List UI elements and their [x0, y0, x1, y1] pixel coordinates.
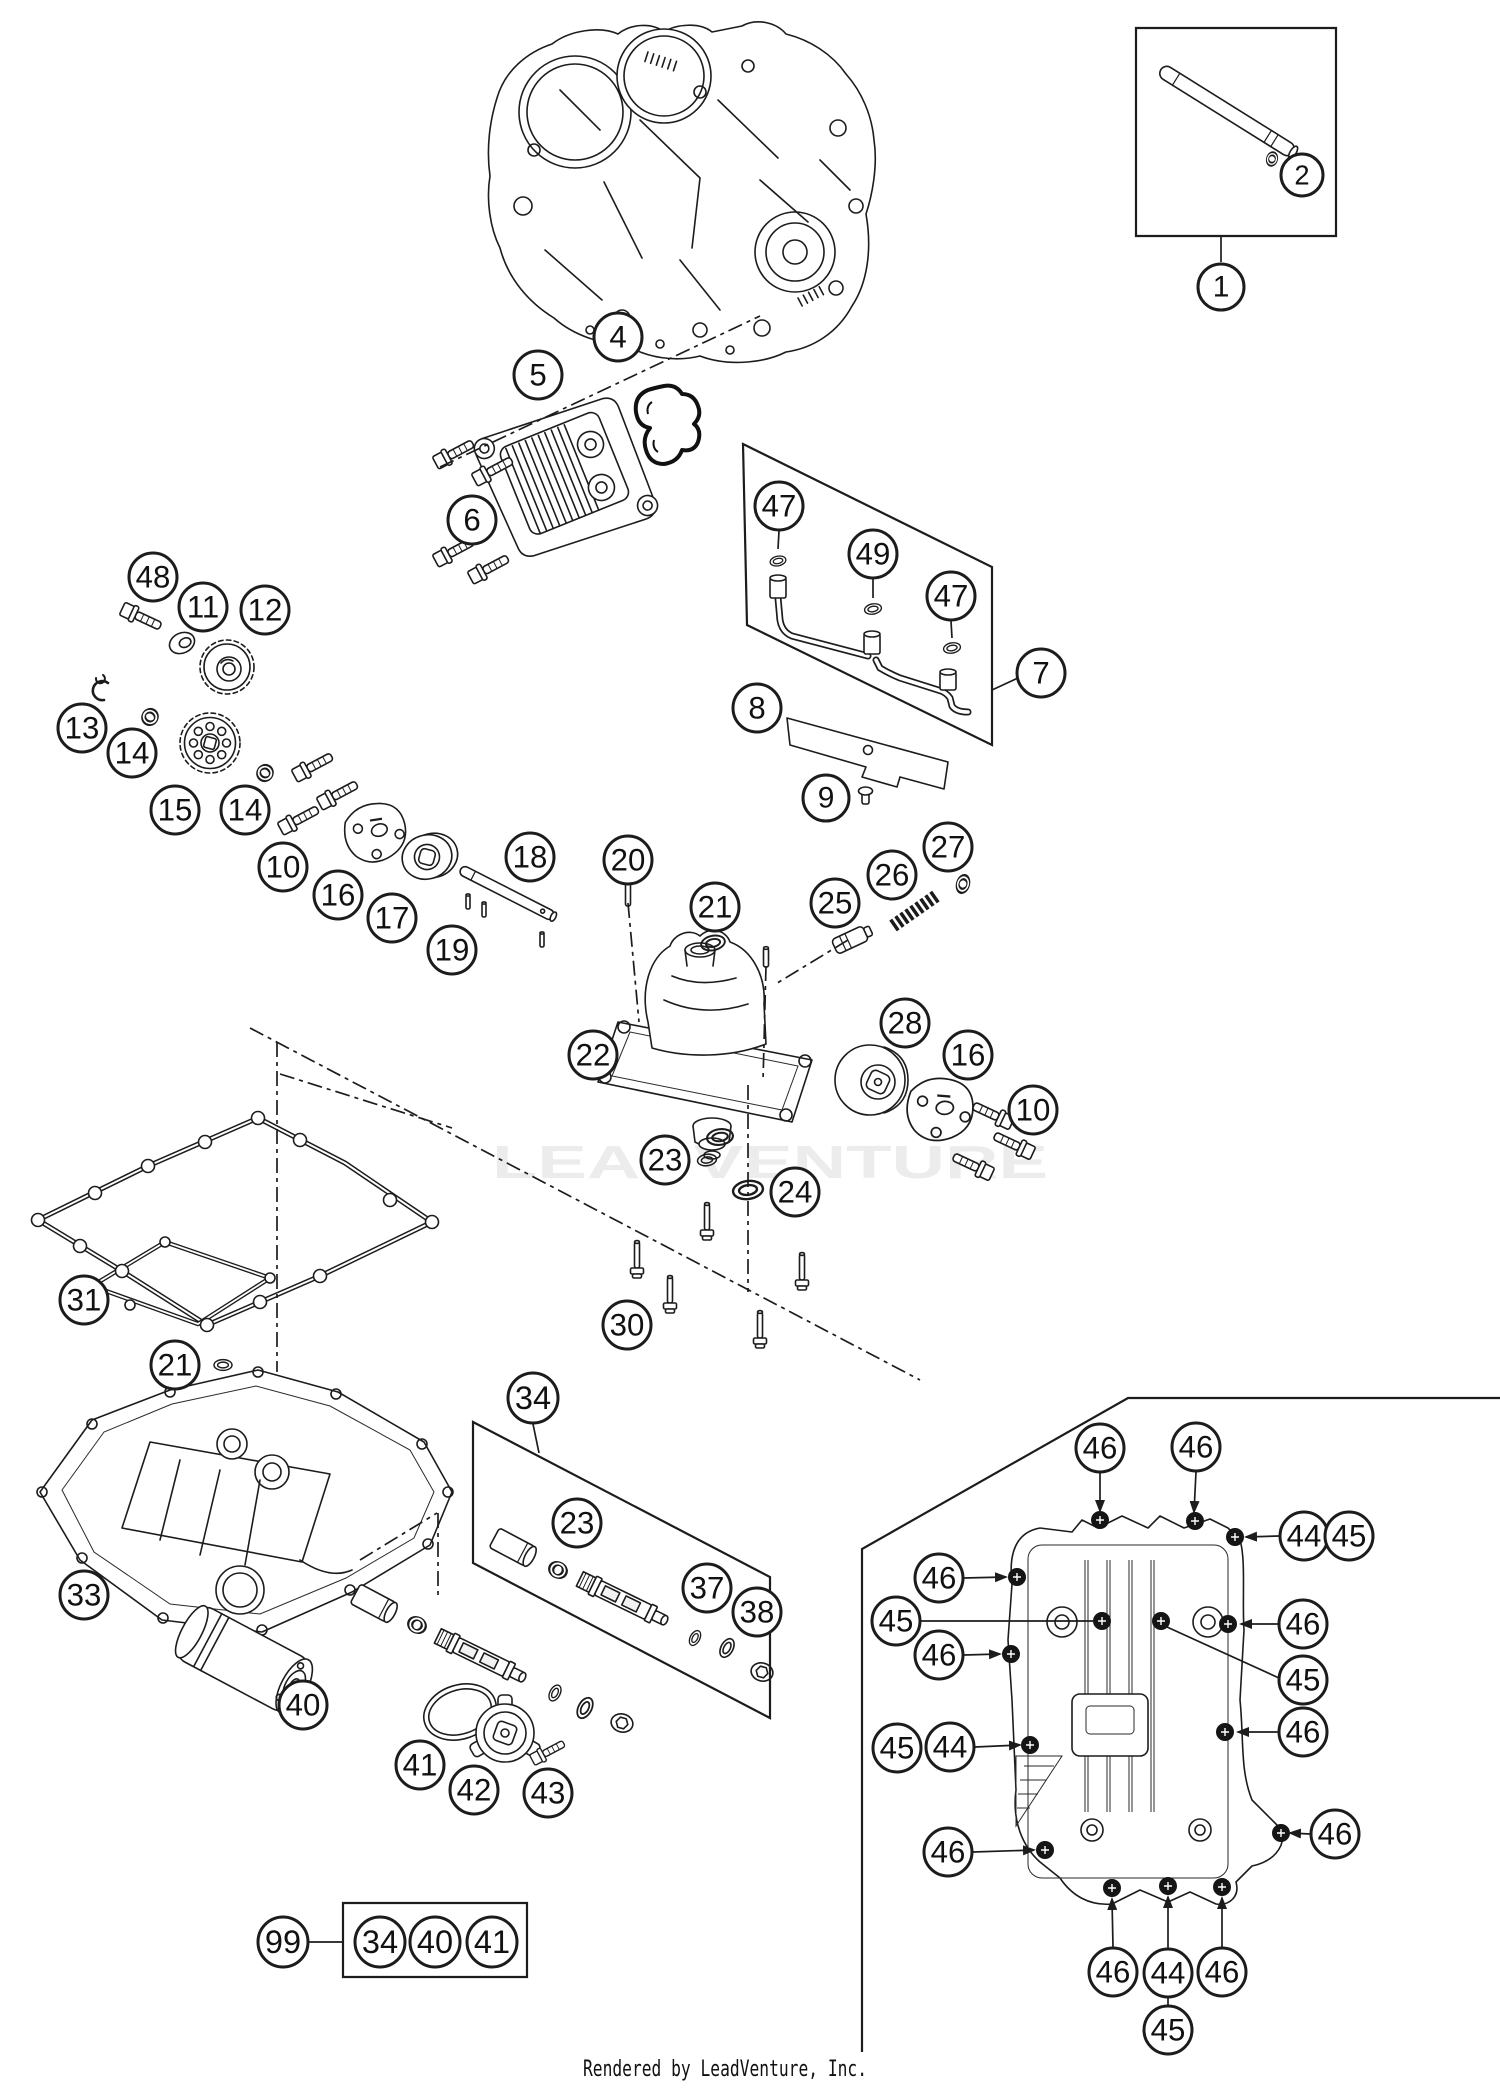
svg-text:5: 5 [529, 358, 546, 393]
leader-line [992, 678, 1018, 690]
parts-diagram-page: LEADVENTURE [0, 0, 1500, 2088]
baffle-screw [859, 787, 873, 804]
bolt-icon [701, 1203, 714, 1240]
callout-11: 11 [179, 583, 227, 631]
svg-text:8: 8 [748, 691, 765, 726]
engine-crankcase [488, 22, 875, 363]
bypass-sleeve [350, 1584, 400, 1624]
callout-49: 49 [849, 530, 897, 578]
bolt-icon [291, 749, 336, 784]
pump-cover-plate [905, 1075, 976, 1143]
svg-text:47: 47 [762, 489, 797, 524]
valve-oring [954, 874, 971, 895]
leader-line [1290, 1833, 1310, 1834]
footer-credit: Rendered by LeadVenture, Inc. [583, 2057, 867, 2082]
gasket-oring [214, 1360, 232, 1371]
svg-text:14: 14 [115, 736, 150, 771]
callout-19: 19 [428, 926, 476, 974]
leader-line [973, 1850, 1034, 1852]
bolt-icon [277, 802, 322, 837]
svg-text:46: 46 [1083, 1431, 1118, 1466]
callout-24: 24 [771, 1168, 819, 1216]
svg-text:44: 44 [1287, 1519, 1322, 1554]
svg-text:21: 21 [698, 890, 733, 925]
bypass-oring [574, 1695, 596, 1721]
callout-16: 16 [314, 871, 362, 919]
callout-7: 7 [1017, 649, 1065, 697]
callout-99: 99 [258, 1917, 308, 1967]
svg-text:21: 21 [158, 1348, 193, 1383]
svg-text:34: 34 [515, 1380, 551, 1416]
svg-text:46: 46 [1205, 1955, 1240, 1990]
callout-45: 45 [872, 1597, 920, 1645]
callout-21: 21 [151, 1341, 199, 1389]
dowel-oring [1265, 151, 1279, 167]
callout-23: 23 [641, 1136, 689, 1184]
callout-25: 25 [811, 879, 859, 927]
bypass-plug [609, 1711, 635, 1734]
bypass-oring [717, 1636, 737, 1659]
callout-45: 45 [1144, 2006, 1192, 2054]
svg-text:41: 41 [474, 1924, 510, 1960]
svg-text:44: 44 [1151, 1956, 1186, 1991]
callout-41: 41 [467, 1917, 517, 1967]
callout-33: 33 [60, 1571, 108, 1619]
circlip [93, 675, 108, 700]
construction-line [774, 940, 848, 985]
svg-text:7: 7 [1032, 656, 1049, 691]
callout-45: 45 [1325, 1512, 1373, 1560]
bypass-valve [575, 1570, 671, 1630]
svg-text:38: 38 [740, 1595, 775, 1630]
svg-text:27: 27 [931, 830, 966, 865]
pipe-oring [864, 603, 883, 616]
bolt-icon [467, 551, 512, 586]
callout-14: 14 [221, 786, 269, 834]
dowel-pin [1157, 64, 1299, 167]
callout-44: 44 [1280, 1512, 1328, 1560]
svg-text:17: 17 [375, 901, 410, 936]
svg-text:44: 44 [933, 1730, 968, 1765]
svg-text:23: 23 [648, 1143, 683, 1178]
bypass-oring [687, 1629, 703, 1648]
svg-text:46: 46 [1318, 1817, 1353, 1852]
kit-1-box [1136, 28, 1336, 236]
callout-22: 22 [569, 1031, 617, 1079]
leader-line [964, 1577, 1006, 1578]
pipe-oring [769, 555, 787, 568]
oil-pan-bottom-view [1003, 1512, 1290, 1905]
svg-text:20: 20 [611, 843, 646, 878]
svg-text:22: 22 [576, 1038, 611, 1073]
dowel-pin-small [540, 932, 544, 947]
baffle-plate [787, 718, 948, 789]
callout-47: 47 [755, 482, 803, 530]
svg-text:46: 46 [1096, 1955, 1131, 1990]
callout-44: 44 [926, 1723, 974, 1771]
construction-line [280, 1074, 452, 1128]
callout-23: 23 [553, 1499, 601, 1547]
callout-27: 27 [924, 823, 972, 871]
svg-text:45: 45 [880, 1731, 915, 1766]
svg-text:49: 49 [856, 537, 891, 572]
callout-45: 45 [1279, 1656, 1327, 1704]
dowel-pin-small [482, 902, 486, 917]
svg-text:11: 11 [187, 590, 219, 625]
svg-text:23: 23 [560, 1506, 595, 1541]
callout-8: 8 [733, 684, 781, 732]
bolt-icon [796, 1253, 809, 1290]
callout-5: 5 [514, 351, 562, 399]
callout-46: 46 [1311, 1810, 1359, 1858]
svg-text:33: 33 [67, 1578, 102, 1613]
svg-text:40: 40 [417, 1924, 453, 1960]
parts-diagram: LEADVENTURE [0, 0, 1500, 2088]
leader-line [1112, 1899, 1113, 1947]
washer [254, 762, 276, 784]
callout-41: 41 [396, 1741, 444, 1789]
callout-14: 14 [108, 729, 156, 777]
callout-48: 48 [129, 553, 177, 601]
svg-text:43: 43 [531, 1776, 566, 1811]
pump-rotor-cup [835, 1045, 908, 1115]
callout-47: 47 [927, 572, 975, 620]
svg-text:19: 19 [435, 933, 470, 968]
callout-42: 42 [450, 1766, 498, 1814]
svg-text:24: 24 [778, 1175, 813, 1210]
leader-line [975, 1745, 1020, 1747]
callout-34: 34 [508, 1373, 558, 1423]
leader-line [1246, 1536, 1279, 1537]
callout-46: 46 [1172, 1423, 1220, 1471]
svg-text:28: 28 [888, 1006, 923, 1041]
callout-43: 43 [524, 1769, 572, 1817]
callout-46: 46 [1279, 1600, 1327, 1648]
svg-text:47: 47 [934, 579, 969, 614]
oil-cooler [471, 387, 661, 569]
svg-text:41: 41 [403, 1748, 438, 1783]
svg-text:12: 12 [248, 593, 283, 628]
bypass-sleeve [489, 1528, 539, 1568]
leader-line [964, 1654, 1000, 1655]
svg-text:42: 42 [457, 1773, 492, 1808]
callout-13: 13 [58, 704, 106, 752]
leader-line [1194, 1472, 1196, 1512]
callout-44: 44 [1144, 1949, 1192, 1997]
callout-28: 28 [881, 999, 929, 1047]
callout-18: 18 [506, 833, 554, 881]
callout-10: 10 [259, 843, 307, 891]
svg-text:10: 10 [1016, 1093, 1051, 1128]
construction-line [250, 1028, 920, 1380]
valve-spring [893, 896, 936, 926]
callout-37: 37 [683, 1564, 731, 1612]
bypass-oring [547, 1683, 564, 1703]
svg-text:1: 1 [1213, 271, 1230, 304]
svg-text:34: 34 [362, 1924, 398, 1960]
bypass-valve [433, 1627, 529, 1687]
cooler-gasket [636, 386, 700, 464]
svg-text:45: 45 [1332, 1519, 1367, 1554]
gear-large [180, 713, 240, 773]
bolt-icon [664, 1276, 677, 1313]
svg-text:45: 45 [1151, 2013, 1186, 2048]
svg-text:18: 18 [513, 840, 548, 875]
svg-text:16: 16 [951, 1038, 986, 1073]
bolt-icon [631, 1241, 644, 1278]
leader-line [778, 531, 779, 549]
svg-text:9: 9 [818, 782, 835, 815]
callout-46: 46 [1089, 1948, 1137, 1996]
svg-text:46: 46 [1286, 1607, 1321, 1642]
callout-10: 10 [1009, 1086, 1057, 1134]
pump-rotor-set [397, 828, 462, 885]
filter-cap [469, 1695, 542, 1762]
callout-46: 46 [915, 1631, 963, 1679]
svg-text:2: 2 [1294, 160, 1309, 191]
bypass-valve-parts [350, 1528, 775, 1735]
callout-34: 34 [355, 1917, 405, 1967]
callout-46: 46 [915, 1554, 963, 1602]
svg-text:99: 99 [265, 1924, 301, 1960]
callout-30: 30 [603, 1301, 651, 1349]
svg-text:46: 46 [931, 1835, 966, 1870]
svg-text:46: 46 [1286, 1715, 1321, 1750]
pan-gasket [32, 1112, 439, 1371]
svg-text:31: 31 [67, 1283, 102, 1318]
callout-31: 31 [60, 1276, 108, 1324]
callout-20: 20 [604, 836, 652, 884]
callout-46: 46 [924, 1828, 972, 1876]
svg-text:30: 30 [610, 1308, 645, 1343]
callout-15: 15 [151, 786, 199, 834]
svg-text:46: 46 [922, 1561, 957, 1596]
collar [166, 628, 198, 657]
svg-text:6: 6 [463, 503, 480, 538]
callout-1: 1 [1198, 264, 1244, 310]
svg-text:40: 40 [286, 1688, 321, 1723]
dowel-pin-small [466, 894, 470, 909]
bolt-icon [316, 777, 361, 812]
pipe-oring [943, 642, 962, 655]
svg-text:48: 48 [136, 560, 171, 595]
callout-21: 21 [691, 883, 739, 931]
bypass-oring [546, 1559, 569, 1582]
callout-2: 2 [1281, 154, 1323, 196]
callout-38: 38 [733, 1588, 781, 1636]
svg-text:45: 45 [1286, 1663, 1321, 1698]
construction-line [628, 903, 639, 1022]
svg-text:46: 46 [922, 1638, 957, 1673]
callout-46: 46 [1279, 1708, 1327, 1756]
callout-40: 40 [279, 1681, 327, 1729]
gear-small [200, 640, 254, 694]
callout-40: 40 [410, 1917, 460, 1967]
callout-6: 6 [448, 496, 496, 544]
svg-text:26: 26 [875, 858, 910, 893]
callout-12: 12 [241, 586, 289, 634]
svg-text:46: 46 [1179, 1430, 1214, 1465]
bypass-oring [405, 1614, 428, 1637]
svg-text:14: 14 [228, 793, 263, 828]
leader-line [951, 621, 952, 638]
svg-text:13: 13 [65, 711, 100, 746]
callout-26: 26 [868, 851, 916, 899]
svg-text:10: 10 [266, 850, 301, 885]
leader-line [533, 1424, 539, 1453]
callout-45: 45 [873, 1724, 921, 1772]
svg-text:16: 16 [321, 878, 356, 913]
svg-text:15: 15 [158, 793, 193, 828]
callout-9: 9 [803, 775, 849, 821]
bolt-icon [119, 601, 164, 634]
svg-text:4: 4 [609, 320, 626, 355]
callout-17: 17 [368, 894, 416, 942]
callout-16: 16 [944, 1031, 992, 1079]
washer [139, 706, 161, 728]
svg-text:37: 37 [690, 1571, 725, 1606]
callout-46: 46 [1076, 1424, 1124, 1472]
callout-46: 46 [1198, 1948, 1246, 1996]
callout-4: 4 [594, 313, 642, 361]
svg-text:25: 25 [818, 886, 853, 921]
bolt-icon [754, 1311, 767, 1348]
svg-text:45: 45 [879, 1604, 914, 1639]
